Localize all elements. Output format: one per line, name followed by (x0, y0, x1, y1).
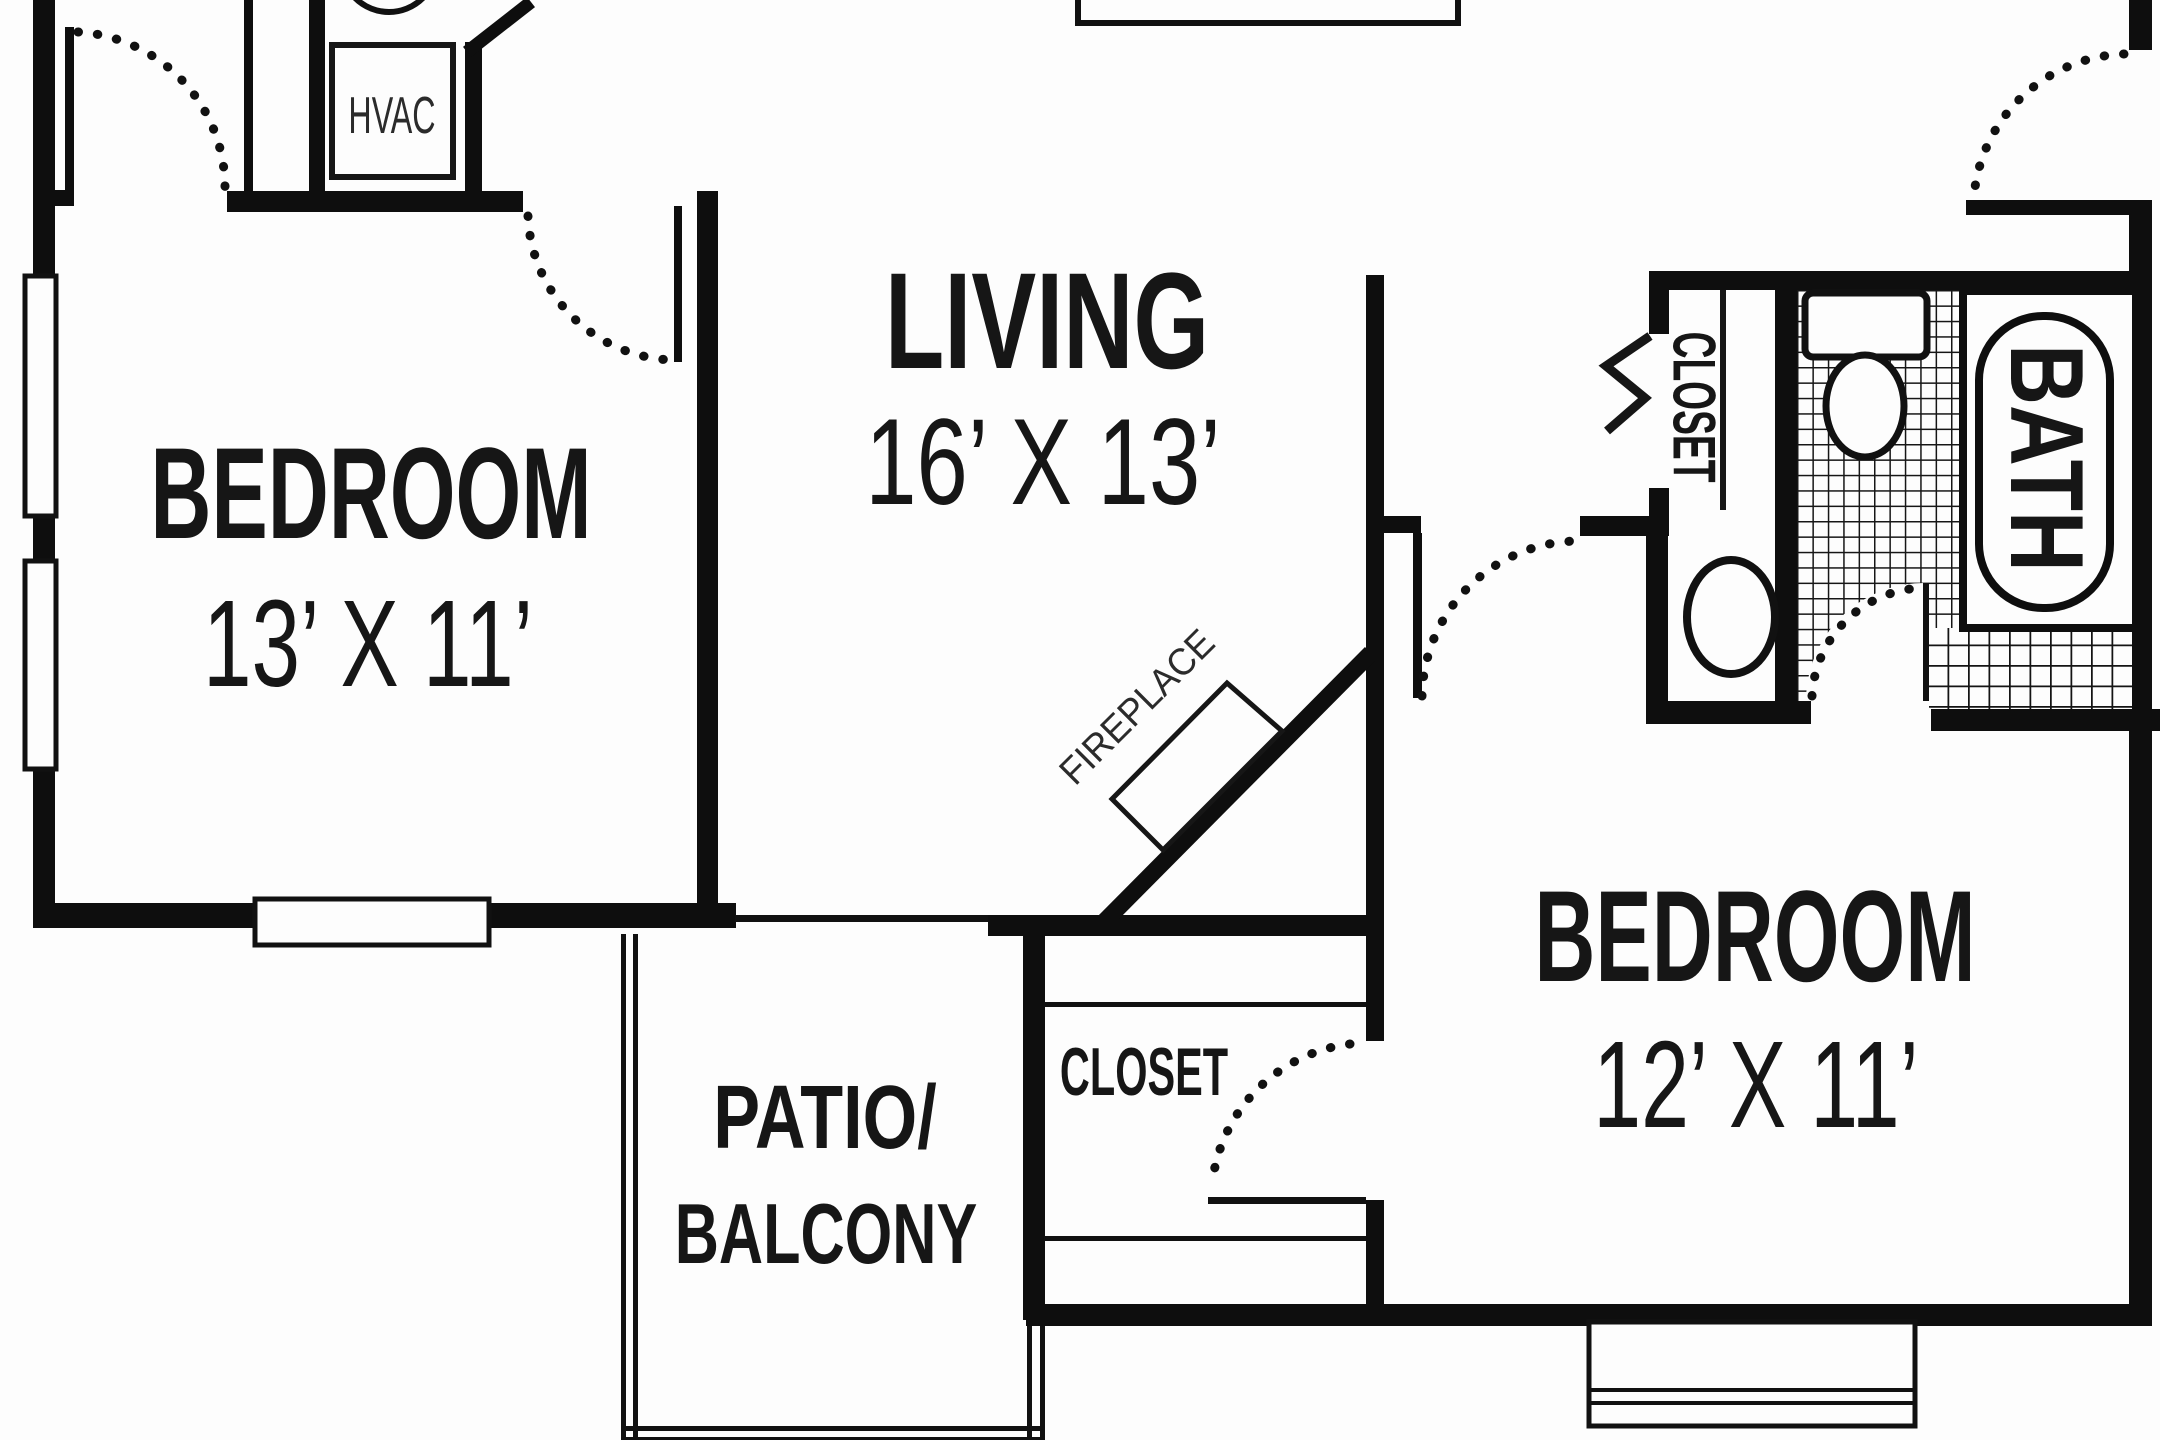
svg-text:BALCONY: BALCONY (675, 1186, 978, 1281)
svg-text:PATIO/: PATIO/ (713, 1068, 937, 1168)
svg-text:CLOSET: CLOSET (1060, 1033, 1228, 1109)
svg-text:BEDROOM: BEDROOM (1534, 865, 1975, 1010)
svg-text:CLOSET: CLOSET (1660, 332, 1727, 483)
svg-text:12’ X 11’: 12’ X 11’ (1593, 1017, 1918, 1154)
svg-text:BATH: BATH (1988, 344, 2104, 572)
svg-text:16’ X 13’: 16’ X 13’ (865, 394, 1221, 531)
svg-text:BEDROOM: BEDROOM (150, 422, 591, 567)
svg-text:LIVING: LIVING (885, 245, 1209, 398)
svg-text:HVAC: HVAC (348, 87, 435, 145)
svg-text:13’ X 11’: 13’ X 11’ (203, 574, 533, 712)
